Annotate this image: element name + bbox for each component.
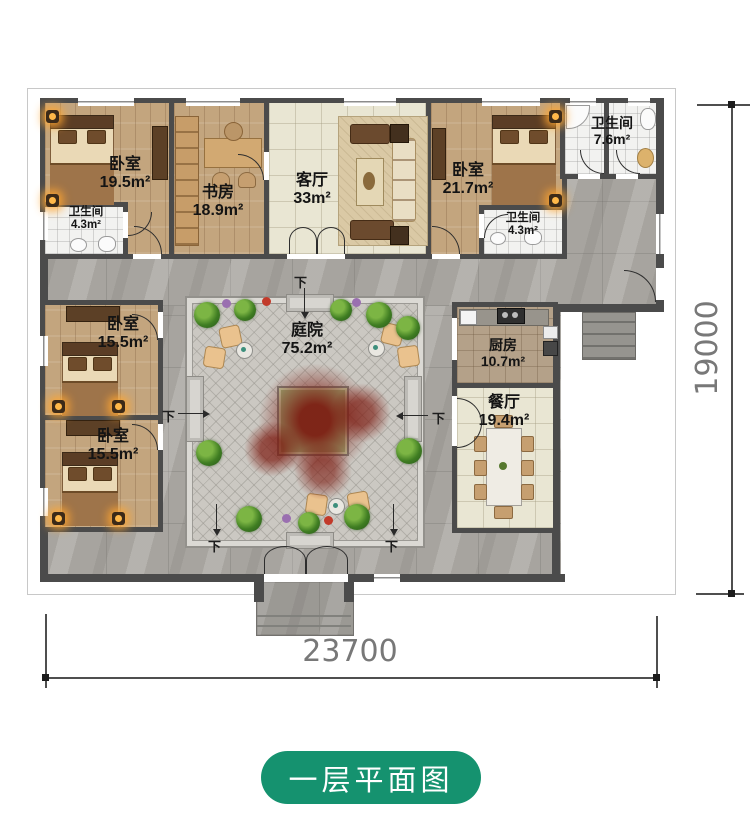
room-label-bedroom-nw: 卧室 19.5m² [70,156,180,192]
bedside-lamp [549,110,562,123]
door-gap [432,254,460,259]
bed [62,342,118,416]
room-label-living: 客厅 33m² [262,172,362,208]
window [40,212,48,240]
door-gap [616,174,638,179]
door-gap [656,268,664,300]
room-area: 4.3m² [48,219,124,232]
window [344,98,396,106]
room-area: 4.3m² [484,225,562,238]
room-name: 庭院 [291,322,323,339]
door-arc [289,227,317,254]
garden-table [236,342,253,359]
step-arrow-line [178,413,206,414]
bedside-lamp [112,512,125,525]
door-gap [133,254,161,259]
dim-ext-top [697,104,750,106]
porch-step-line [257,625,351,627]
pillow [87,130,106,144]
flower-cluster [222,299,231,308]
dim-line-horizontal [46,677,658,679]
bedside-lamp [52,400,65,413]
plant [196,440,222,466]
dim-line-vertical [731,104,733,594]
plant [234,299,256,321]
blanket [62,491,118,526]
room-area: 18.9m² [168,202,268,220]
bath-sink [70,238,87,252]
pillow [500,130,519,144]
plant [366,302,392,328]
door-arc [264,546,306,574]
step-arrow-head [390,529,398,536]
room-label-bedroom-w2: 卧室 15.5m² [62,428,164,464]
room-label-bath-inner: 卫生间 4.3m² [484,212,562,238]
pillow [68,467,87,481]
room-label-bedroom-ne: 卧室 21.7m² [416,162,520,198]
room-name: 厨房 [489,337,517,353]
room-label-courtyard: 庭院 75.2m² [256,322,358,358]
window [628,98,650,106]
fridge [460,310,477,325]
plant [396,316,420,340]
pillow [93,467,112,481]
room-label-bath-ne: 卫生间 7.6m² [566,116,658,147]
wall-right-hall-bottom [552,304,664,312]
coffee-table-decor [363,172,375,190]
pillow [58,130,77,144]
bedside-lamp [112,400,125,413]
flower-cluster [352,298,361,307]
door-arc [317,227,345,254]
room-name: 卧室 [107,316,139,333]
armchair [350,124,390,144]
pillow [529,130,548,144]
dining-chair [521,460,534,476]
step-down-label: 下 [294,272,307,291]
step-arrow-head [213,529,221,536]
garden-table [368,340,385,357]
room-name: 餐厅 [488,394,520,411]
plant [344,504,370,530]
dining-chair [521,436,534,452]
bed-headboard [50,115,114,129]
room-name: 客厅 [296,172,328,189]
room-area: 19.4m² [452,412,556,430]
porch-step-line [257,615,351,617]
room-area: 33m² [262,190,362,208]
step-arrow-line [216,504,217,532]
step-arrow-line [393,504,394,532]
stove-burner [512,312,518,318]
room-name: 卫生间 [591,115,633,131]
window [78,98,134,106]
plant [396,438,422,464]
window [186,98,240,106]
room-area: 15.5m² [72,334,174,352]
floor-title-text: 一层平面图 [288,757,453,799]
garden-seat [397,345,421,369]
floor-plan-page: 卧室 19.5m² 卫生间 4.3m² 书房 18.9m² 客厅 33m² 卧室… [0,0,750,838]
room-name: 卧室 [109,156,141,173]
side-table [390,226,409,245]
courtyard-step-left [186,376,204,442]
dim-tick [728,590,735,597]
pillow [68,357,87,371]
step-down-label: 下 [432,408,445,427]
step-arrow-head [301,312,309,319]
step-arrow-head [396,412,403,420]
entrance-porch [256,578,354,636]
room-area: 10.7m² [452,354,554,370]
bed-headboard [492,115,556,129]
room-name: 卧室 [97,428,129,445]
room-area: 15.5m² [62,446,164,464]
dim-width-label: 23700 [270,634,430,669]
tree-canopy-blob [330,382,392,444]
floor-title-badge: 一层平面图 [261,751,481,804]
garden-seat [202,345,226,369]
room-label-bedroom-w1: 卧室 15.5m² [72,316,174,352]
room-label-kitchen: 厨房 10.7m² [452,338,554,369]
side-entrance-steps [582,312,636,360]
door-gap [264,574,348,582]
dining-chair [474,484,487,500]
dim-tick [728,101,735,108]
tree-canopy-blob [292,440,354,502]
door-arc [306,546,348,574]
plant [298,512,320,534]
room-name: 卫生间 [69,206,104,218]
door-gap [287,254,345,259]
dim-ext-bottom [696,593,744,595]
plant [236,506,262,532]
room-name: 卫生间 [506,212,541,224]
stove-burner [502,312,508,318]
window [656,214,664,254]
step-down-label: 下 [385,536,398,555]
flower-cluster [282,514,291,523]
step-arrow-line [304,288,305,314]
step-arrow-line [400,415,428,416]
toilet [98,236,116,252]
room-area: 7.6m² [566,132,658,148]
step-arrow-head [203,410,210,418]
side-table [390,124,409,143]
flower-cluster [324,516,333,525]
room-label-study: 书房 18.9m² [168,184,268,220]
courtyard-step-top [286,294,334,312]
sofa [392,138,416,222]
flower-cluster [262,297,271,306]
room-name: 书房 [202,184,234,201]
window [40,336,48,366]
desk-chair [224,122,243,141]
dim-tick [42,674,49,681]
room-name: 卧室 [452,162,484,179]
step-down-label: 下 [162,406,175,425]
plant [330,299,352,321]
pillow [93,357,112,371]
armchair [350,220,394,240]
porch-wall [254,574,264,602]
dim-tick [653,674,660,681]
bedside-lamp [46,110,59,123]
window [482,98,540,106]
window [40,488,48,516]
room-area: 19.5m² [70,174,180,192]
dining-chair [474,460,487,476]
bedside-lamp [549,194,562,207]
room-label-dining: 餐厅 19.4m² [452,394,556,430]
table-plant [499,462,507,470]
room-label-bath-nw: 卫生间 4.3m² [48,206,124,232]
courtyard-step-right [404,376,422,442]
door-gap [578,174,600,179]
dining-chair [494,506,513,519]
bedside-lamp [52,512,65,525]
plant [194,302,220,328]
dining-chair [521,484,534,500]
blanket [62,381,118,416]
dim-height-label: 19000 [690,288,730,408]
room-area: 21.7m² [416,180,520,198]
window [374,574,400,582]
step-down-label: 下 [208,536,221,555]
room-area: 75.2m² [256,340,358,358]
